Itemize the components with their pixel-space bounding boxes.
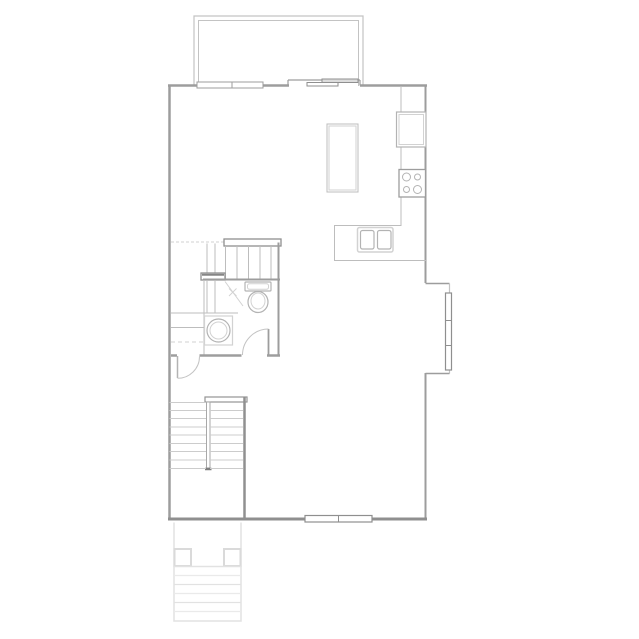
lower-stair-head-wall — [205, 397, 247, 402]
floor-plan-page — [0, 0, 639, 639]
entry-stoop-outline — [174, 523, 241, 622]
stair-header-rail — [224, 239, 281, 246]
kitchen-sink — [358, 228, 394, 253]
closet-door-arc — [178, 357, 200, 379]
window-bay — [446, 293, 452, 370]
kitchen-island — [327, 124, 358, 192]
bathroom-door-arc — [243, 329, 269, 355]
stair-divider-wall — [207, 402, 211, 468]
deck-wall-inner — [199, 21, 359, 87]
floor-plan — [0, 0, 639, 639]
slider-door-panel-inner — [307, 83, 338, 87]
stove — [399, 170, 426, 198]
stoop-post-left — [175, 549, 192, 566]
deck-wall-outer — [194, 16, 363, 86]
window-top — [197, 82, 263, 88]
refrigerator — [397, 112, 427, 147]
stoop-post-right — [224, 549, 241, 566]
slider-door-panel-outer — [322, 79, 358, 83]
